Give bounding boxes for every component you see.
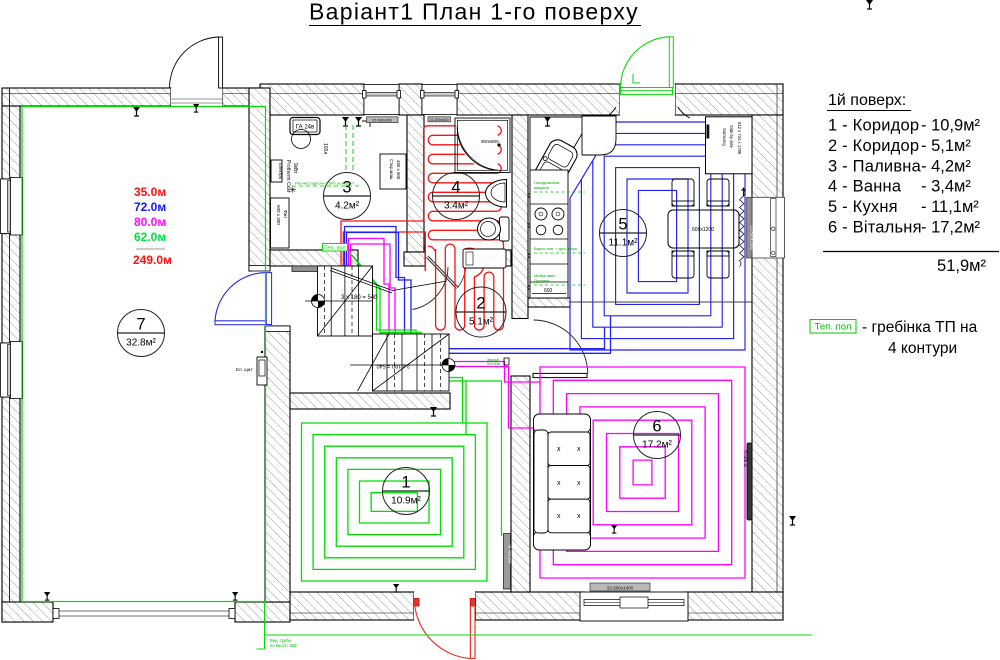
svg-text:5 - Кухня: 5 - Кухня (828, 198, 898, 216)
svg-text:1 - Коридор: 1 - Коридор (828, 117, 919, 135)
svg-text:- 10,9м²: - 10,9м² (921, 117, 981, 135)
svg-text:4 - Ванна: 4 - Ванна (828, 178, 902, 196)
svg-text:4: 4 (451, 179, 460, 197)
svg-text:5х0.50м: 5х0.50м (487, 362, 501, 366)
svg-text:5.1м²: 5.1м² (469, 317, 494, 328)
svg-text:x: x (557, 446, 561, 453)
svg-text:450 x 600: 450 x 600 (396, 160, 401, 180)
svg-text:- 3,4м²: - 3,4м² (921, 178, 971, 196)
svg-text:4 контури: 4 контури (888, 340, 957, 357)
svg-text:Стир.маш.: Стир.маш. (389, 159, 394, 181)
svg-text:80.0м: 80.0м (134, 215, 166, 229)
svg-text:Варіант1 План 1-го поверху: Варіант1 План 1-го поверху (309, 0, 639, 25)
svg-text:3 x 180 = 540: 3 x 180 = 540 (377, 363, 411, 369)
svg-text:- 4,2м²: - 4,2м² (921, 157, 971, 175)
svg-text:32.8м²: 32.8м² (126, 338, 156, 349)
svg-text:- 17,2м²: - 17,2м² (921, 219, 981, 237)
svg-text:1й поверх:: 1й поверх: (828, 92, 906, 109)
svg-text:- 5,1м²: - 5,1м² (921, 137, 971, 155)
svg-text:x: x (577, 446, 581, 453)
svg-text:5: 5 (618, 216, 627, 234)
svg-text:249.0м: 249.0м (133, 253, 172, 267)
svg-text:600: 600 (544, 288, 553, 294)
svg-text:Теп. пол: Теп. пол (324, 246, 345, 252)
svg-text:2: 2 (476, 295, 485, 313)
svg-text:7: 7 (136, 316, 145, 334)
svg-text:- гребінка ТП на: - гребінка ТП на (862, 319, 978, 336)
svg-text:1: 1 (401, 474, 410, 492)
svg-text:22-500x600: 22-500x600 (430, 118, 449, 122)
svg-text:912 x 734 x 1789: 912 x 734 x 1789 (737, 122, 742, 155)
svg-text:✳: ✳ (289, 185, 297, 195)
svg-text:x: x (557, 480, 561, 487)
svg-text:72.0м: 72.0м (134, 200, 166, 214)
svg-text:10.9м²: 10.9м² (391, 496, 421, 507)
svg-text:Фжт: Фжт (283, 210, 288, 219)
svg-text:машина: машина (534, 185, 550, 190)
svg-text:600 x 300: 600 x 300 (276, 205, 281, 225)
svg-text:Духовка: Духовка (534, 278, 550, 283)
svg-text:по висоті 16Ø: по висоті 16Ø (270, 643, 297, 648)
svg-text:100л: 100л (322, 143, 328, 154)
svg-text:35.0м: 35.0м (134, 185, 166, 199)
svg-text:600х1200: 600х1200 (692, 227, 714, 233)
svg-text:x: x (577, 480, 581, 487)
svg-text:22-500x1000: 22-500x1000 (750, 226, 755, 251)
svg-text:3 - Паливна: 3 - Паливна (828, 157, 922, 175)
svg-text:11-400x800: 11-400x800 (508, 545, 512, 563)
svg-text:Рів.чист.підлоги 0.000 за кер.: Рів.чист.підлоги 0.000 за кер.пл. (295, 181, 355, 186)
svg-text:Samsung: Samsung (722, 128, 727, 146)
svg-text:3.4м²: 3.4м² (444, 201, 469, 212)
svg-text:Ел. щит: Ел. щит (236, 367, 252, 372)
svg-text:6: 6 (652, 418, 661, 436)
svg-text:62.0м: 62.0м (134, 230, 166, 244)
svg-text:Side by side: Side by side (729, 125, 734, 148)
svg-text:x: x (557, 513, 561, 520)
svg-text:900х900: 900х900 (481, 139, 499, 144)
svg-text:- 11,1м²: - 11,1м² (921, 198, 979, 216)
svg-text:51,9м²: 51,9м² (937, 257, 986, 275)
svg-text:TV LED 42: TV LED 42 (743, 450, 747, 467)
svg-text:4.2м²: 4.2м² (335, 201, 360, 212)
svg-text:Вароч.пов. + дух.шафа: Вароч.пов. + дух.шафа (534, 246, 578, 251)
svg-text:6 - Вітальня: 6 - Вітальня (828, 219, 922, 237)
svg-text:17.2м²: 17.2м² (642, 440, 672, 451)
svg-text:x: x (577, 513, 581, 520)
svg-text:2 - Коридор: 2 - Коридор (828, 137, 919, 155)
svg-text:22-500x1400: 22-500x1400 (607, 586, 634, 591)
svg-text:Електро: Електро (278, 163, 283, 180)
svg-text:9кВт: 9кВт (292, 163, 298, 174)
svg-text:22-500x600: 22-500x600 (372, 118, 392, 122)
svg-text:Теп. пол: Теп. пол (815, 322, 852, 333)
svg-text:11.1м²: 11.1м² (609, 238, 639, 249)
svg-text:3 x 180 = 540: 3 x 180 = 540 (341, 295, 378, 301)
